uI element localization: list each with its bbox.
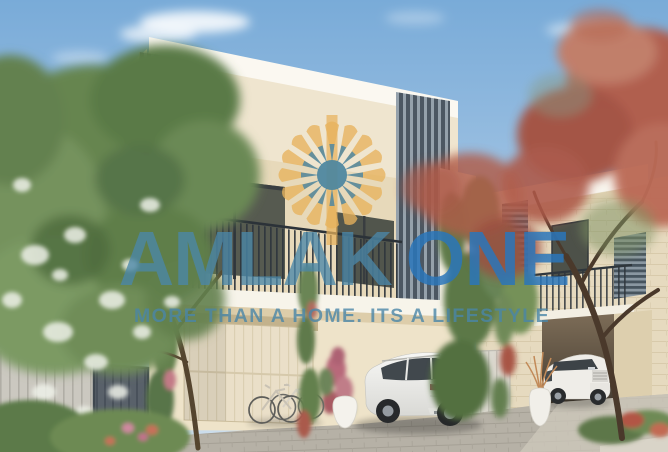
property-render: AMLAKONE MORE THAN A HOME. ITS A LIFESTY… (0, 0, 668, 452)
scene-illustration (0, 0, 668, 452)
